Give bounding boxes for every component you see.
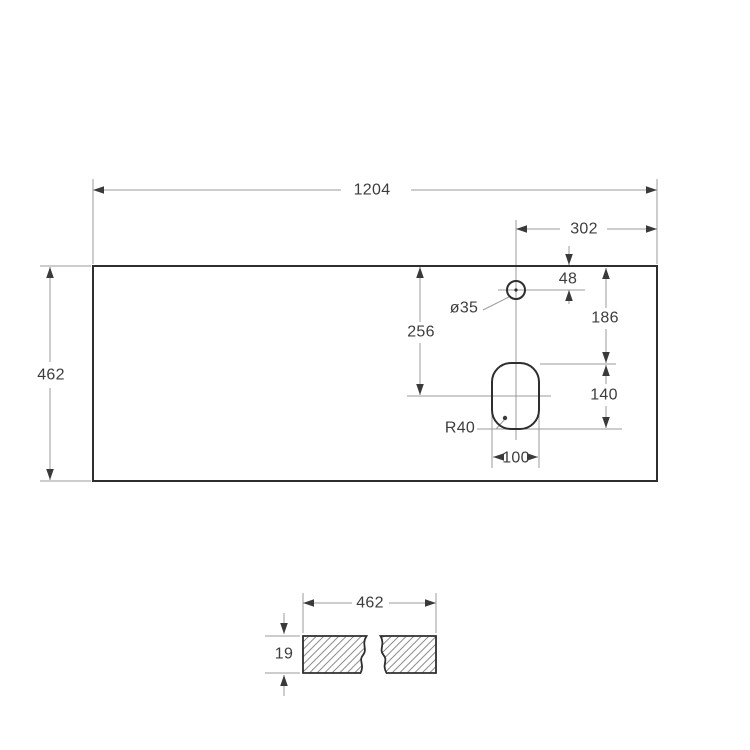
dim-label-section-width: 462 bbox=[356, 595, 384, 612]
section-view: 462 19 bbox=[265, 593, 436, 696]
dim-overall-width: 1204 bbox=[93, 182, 657, 199]
countertop-outline bbox=[93, 266, 657, 481]
dim-label-section-thickness: 19 bbox=[275, 646, 293, 663]
dim-cutout-offset-top: 186 bbox=[591, 268, 619, 363]
dim-label-hole-diameter: ø35 bbox=[450, 300, 478, 317]
dim-cutout-width: 100 bbox=[493, 450, 538, 467]
dim-label-cutout-offset-top: 186 bbox=[591, 310, 619, 327]
dim-label-cutout-center-offset: 256 bbox=[407, 324, 435, 341]
dim-hole-offset-top: 48 bbox=[559, 246, 577, 304]
faucet-hole-center-dot bbox=[514, 288, 517, 291]
countertop-dimension-drawing: 1204 302 462 48 186 140 256 100 bbox=[0, 0, 750, 750]
dim-hole-offset-right: 302 bbox=[516, 221, 657, 238]
dim-label-overall-depth: 462 bbox=[37, 367, 65, 384]
dim-label-hole-offset-right: 302 bbox=[570, 221, 598, 238]
leader-hole-diameter: ø35 bbox=[450, 297, 509, 317]
leader-cutout-radius: R40 bbox=[445, 416, 507, 437]
section-bar-left bbox=[303, 636, 367, 673]
dim-cutout-center-offset: 256 bbox=[407, 267, 435, 395]
dim-label-hole-offset-top: 48 bbox=[559, 271, 577, 288]
dim-section-thickness: 19 bbox=[275, 613, 293, 696]
extension-lines bbox=[40, 179, 657, 481]
technical-drawing-canvas: 1204 302 462 48 186 140 256 100 bbox=[0, 0, 750, 750]
dim-label-cutout-radius: R40 bbox=[445, 420, 475, 437]
section-bar-right bbox=[381, 636, 437, 673]
dim-section-width: 462 bbox=[303, 595, 436, 612]
dim-label-overall-width: 1204 bbox=[354, 182, 391, 199]
dim-label-cutout-height: 140 bbox=[590, 387, 618, 404]
dim-overall-depth: 462 bbox=[37, 267, 65, 480]
dim-cutout-height: 140 bbox=[590, 365, 618, 428]
dim-label-cutout-width: 100 bbox=[502, 450, 530, 467]
